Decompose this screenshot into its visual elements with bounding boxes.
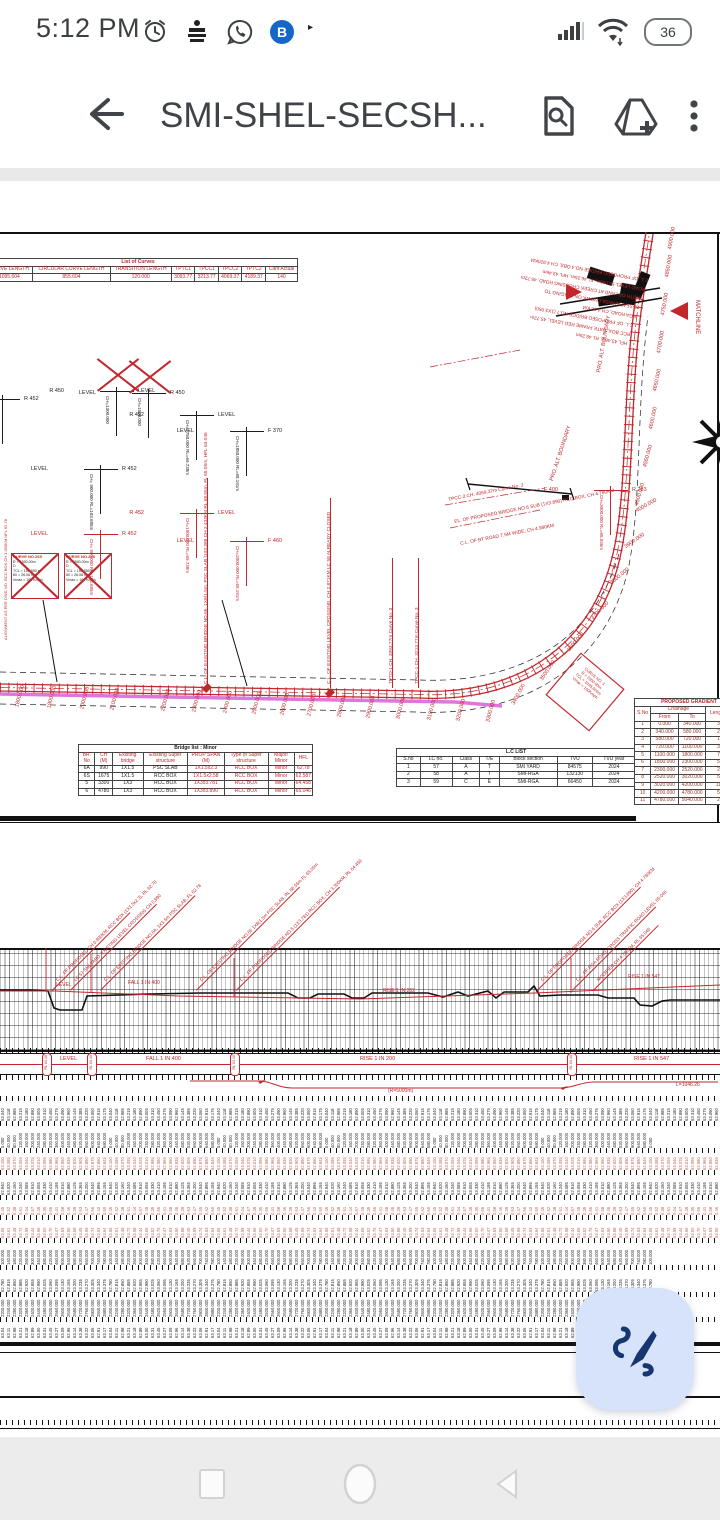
page-gap: [0, 168, 720, 181]
proposed-gradient-table: PROPOSED GRADIENTS.NoChainageLength Metr…: [634, 698, 720, 822]
data-row: 62.94063.02063.16063.24063.08562.91063.0…: [0, 1175, 718, 1195]
table-cell: 2024: [592, 771, 635, 779]
table-cell: 64.458: [294, 780, 312, 788]
table-row: 93020.0004200.0001180.00: [635, 782, 720, 790]
more-notifications-indicator: ▸: [308, 22, 313, 33]
data-table: Bridge list : MinorBR. NoCH (M)Existing …: [78, 744, 313, 796]
table-cell: 1X3: [112, 780, 143, 788]
column-header: Type of Super structure: [224, 752, 268, 765]
table-cell: 4069.37: [218, 274, 242, 282]
table-row: 6A9901X1.5PSC SLAB1X1.5x2.3RCC BOXMinor6…: [79, 765, 313, 773]
table-row: 114780.0005040.000260.00: [635, 797, 720, 805]
table-cell: 1X1.5x2.58: [188, 773, 224, 781]
table-cell: 2: [397, 771, 421, 779]
table-cell: 580.000: [678, 729, 706, 737]
data-value: 62.960: [714, 1101, 718, 1121]
table-cell: RCC BOX: [224, 788, 268, 796]
table-cell: 4: [635, 744, 651, 752]
table-cell: 1X1.5: [112, 773, 143, 781]
table-cell: 4780.000: [651, 797, 679, 805]
table-cell: 11: [635, 797, 651, 805]
table-cell: 220.00: [706, 767, 720, 775]
table-cell: 1: [635, 721, 651, 729]
table-title: PROPOSED GRADIENT: [635, 699, 720, 707]
table-cell: A: [452, 771, 480, 779]
table-cell: 1100.000: [651, 752, 679, 760]
table-cell: 8: [635, 774, 651, 782]
table-cell: 0.000: [651, 721, 679, 729]
table-row: 3580.000720.000140.00: [635, 736, 720, 744]
column-header: S.no: [397, 756, 421, 764]
table-title: List of Curves: [0, 259, 298, 267]
column-header: TVU year: [592, 756, 635, 764]
table-cell: 58: [420, 771, 452, 779]
bob-app-icon: B: [268, 18, 296, 46]
table-cell: 1X1.5: [112, 765, 143, 773]
table-cell: 1095.604: [0, 274, 33, 282]
table-cell: C: [452, 779, 480, 787]
table-cell: RCC BOX: [143, 780, 188, 788]
news-app-icon: [184, 18, 210, 44]
table-cell: 140.00: [706, 736, 720, 744]
data-value: 40.000: [654, 1126, 655, 1148]
left-edge-note: ALIGNMENT AS PER DWG NO. RCC BOX CH 1.05…: [3, 519, 9, 640]
table-cell: Minor: [268, 788, 294, 796]
table-cell: RCC BOX: [224, 780, 268, 788]
recents-button[interactable]: [182, 1459, 242, 1509]
table-cell: 6A: [79, 765, 95, 773]
column-header: Length Metre: [706, 706, 720, 721]
column-header: TPTC2: [242, 266, 266, 274]
data-row: 63.0463.1162.9863.2163.1862.8963.0063.31…: [0, 1322, 655, 1338]
plan-bottom-border2: [0, 822, 720, 823]
column-header: Class: [452, 756, 480, 764]
table-cell: 1X3x3.781: [188, 780, 224, 788]
table-cell: 10: [635, 790, 651, 798]
table-cell: 3213.77: [195, 274, 219, 282]
table-cell: 3300: [95, 780, 112, 788]
column-header: Major/ Minor: [268, 752, 294, 765]
table-cell: 120.000: [110, 274, 171, 282]
column-header: BR. No: [79, 752, 95, 765]
table-cell: T: [480, 771, 499, 779]
table-cell: PSC SLAB: [143, 765, 188, 773]
table-cell: 500.00: [706, 774, 720, 782]
vc-radius-label: (R=5000m): [388, 1088, 413, 1094]
annotate-fab[interactable]: [576, 1288, 694, 1410]
table-cell: Minor: [268, 765, 294, 773]
table-cell: 9: [635, 782, 651, 790]
data-table: PROPOSED GRADIENTS.NoChainageLength Metr…: [634, 698, 720, 805]
table-cell: 65.046: [294, 788, 312, 796]
data-row: 0.00040.00080.000120.000160.000200.00024…: [0, 1126, 655, 1148]
table-cell: 500.00: [706, 759, 720, 767]
home-button[interactable]: [330, 1459, 390, 1509]
data-table: List of CurvesNCURVE LENGTHCIRCULAR CURV…: [0, 258, 298, 282]
table-row: 647801X3RCC BOX1X3x3.890RCC BOXMinor65.0…: [79, 788, 313, 796]
column-header: TPCC2: [218, 266, 242, 274]
table-cell: 2: [635, 729, 651, 737]
table-cell: 57: [420, 764, 452, 772]
table-cell: 260.00: [706, 797, 720, 805]
column-header: LC no.: [420, 756, 452, 764]
table-cell: 3020.000: [651, 782, 679, 790]
table-row: 4720.0001100.000380.00: [635, 744, 720, 752]
table-cell: 1800.000: [651, 759, 679, 767]
data-value: 63.50: [714, 1220, 718, 1238]
table-row: 533001X3RCC BOX1X3x3.781RCC BOXMinor64.4…: [79, 780, 313, 788]
table-cell: 720.000: [678, 736, 706, 744]
plan-bottom-border: [0, 816, 636, 821]
table-cell: 580.00: [706, 790, 720, 798]
column-header: CURVE LENGTH: [0, 266, 33, 274]
column-header: CIRCULAR CURVE LENGTH: [33, 266, 110, 274]
table-cell: E: [480, 779, 499, 787]
data-row: 100.000140.000180.000220.000260.000300.0…: [0, 1243, 655, 1265]
table-cell: 990: [95, 765, 112, 773]
table-cell: A: [452, 764, 480, 772]
more-options-button[interactable]: [676, 94, 712, 138]
find-in-page-button[interactable]: [536, 94, 580, 138]
table-cell: 1675: [95, 773, 112, 781]
data-row: 63.5563.6163.4863.7263.5863.4463.6663.52…: [0, 1220, 718, 1238]
column-header: Cant Actual: [266, 266, 298, 274]
data-table: L.C LISTS.noLC no.ClassT/EBlock sectionT…: [396, 748, 636, 787]
vertical-curve-band: [0, 1080, 720, 1096]
table-cell: 5040.000: [678, 797, 706, 805]
table-cell: 3093.77: [171, 274, 195, 282]
back-button[interactable]: [82, 92, 126, 136]
table-cell: 6: [635, 759, 651, 767]
navigation-bar: [0, 1437, 720, 1520]
table-row: 359CESMI-RGA664502024: [397, 779, 636, 787]
table-cell: 1800.000: [678, 752, 706, 760]
table-title: Bridge list : Minor: [79, 745, 313, 753]
column-header: PROP SPAN (M): [188, 752, 224, 765]
table-cell: 84575: [557, 764, 592, 772]
data-value: 0.46: [714, 1200, 718, 1215]
table-row: 72300.0002520.000220.00: [635, 767, 720, 775]
status-bar: 5:12 PM B ▸ 36: [0, 0, 720, 60]
data-row: 63.10063.08563.07063.05563.04063.02563.0…: [0, 1153, 718, 1170]
vc-length-label: L=1046.26: [676, 1082, 700, 1088]
table-row: 61800.0002300.000500.00: [635, 759, 720, 767]
column-header: TPCC1: [195, 266, 219, 274]
document-title: SMI-SHEL-SECSH...: [160, 96, 487, 136]
data-row: 62.78062.81562.85062.88562.92062.95562.9…: [0, 1270, 655, 1292]
table-cell: 340.000: [651, 729, 679, 737]
whatsapp-icon: [226, 18, 254, 46]
table-cell: RCC BOX: [224, 765, 268, 773]
table-cell: 1X1.5x2.3: [188, 765, 224, 773]
wifi-icon: [596, 16, 630, 46]
column-header: From: [651, 714, 679, 722]
table-cell: Minor: [268, 780, 294, 788]
svg-text:B: B: [277, 24, 287, 40]
table-cell: 3: [635, 736, 651, 744]
table-row: 157ATSMI YARD845752024: [397, 764, 636, 772]
table-cell: 62.587: [294, 773, 312, 781]
table-cell: 720.000: [651, 744, 679, 752]
back-nav-button[interactable]: [478, 1459, 538, 1509]
matchline-label: MATCHLINE: [694, 300, 700, 334]
column-header: S.No: [635, 706, 651, 721]
table-cell: 1: [397, 764, 421, 772]
crossed-curve-box: CURVE NO.248 R = 2500.00mDTCL = 150.550 …: [64, 553, 112, 599]
table-row: 2340.000580.000240.00: [635, 729, 720, 737]
table-cell: 1180.00: [706, 782, 720, 790]
table-cell: RCC BOX: [224, 773, 268, 781]
table-cell: 3: [397, 779, 421, 787]
alarm-icon: [142, 18, 168, 44]
table-cell: 3020.000: [678, 774, 706, 782]
table-cell: 4200.000: [678, 782, 706, 790]
table-cell: 6S: [79, 773, 95, 781]
table-cell: 132130: [557, 771, 592, 779]
table-cell: 4780: [95, 788, 112, 796]
data-row: 2200.0002240.0002280.0002320.0002360.000…: [0, 1297, 655, 1317]
table-row: 1095.604855.604120.0003093.773213.774069…: [0, 274, 298, 282]
table-cell: 340.000: [678, 721, 706, 729]
column-header: TVU: [557, 756, 592, 764]
column-header: Chainage: [651, 706, 706, 714]
grade-band-line: [0, 1064, 720, 1065]
column-header: To: [678, 714, 706, 722]
table-cell: 59: [420, 779, 452, 787]
battery-percent: 36: [660, 24, 676, 40]
data-value: 140.000: [654, 1243, 655, 1265]
table-cell: 380.00: [706, 744, 720, 752]
plan-drawing: [0, 232, 720, 822]
table-cell: 4200.000: [651, 790, 679, 798]
table-cell: SMI YARD: [499, 764, 557, 772]
table-cell: 240.00: [706, 729, 720, 737]
table-title: L.C LIST: [397, 749, 636, 757]
sheet-line: [0, 1428, 720, 1429]
table-row: 82520.0003020.000500.00: [635, 774, 720, 782]
table-row: 6S16751X1.5RCC BOX1X1.5x2.58RCC BOXMinor…: [79, 773, 313, 781]
annotate-pen-icon: [605, 1319, 665, 1379]
table-cell: 2300.000: [678, 759, 706, 767]
table-cell: 4780.000: [678, 790, 706, 798]
table-cell: 2024: [592, 779, 635, 787]
column-header: Existing bridge: [112, 752, 143, 765]
table-cell: 66450: [557, 779, 592, 787]
battery-indicator: 36: [644, 18, 692, 46]
app-bar: SMI-SHEL-SECSH...: [0, 60, 720, 168]
table-cell: 700.00: [706, 752, 720, 760]
clock-time: 5:12 PM: [36, 13, 140, 44]
table-cell: 4189.37: [242, 274, 266, 282]
table-cell: 2520.000: [678, 767, 706, 775]
band-line: [0, 1053, 720, 1054]
table-cell: 2300.000: [651, 767, 679, 775]
data-row: 63.04063.11862.98563.21563.18062.89063.0…: [0, 1101, 718, 1121]
signal-icon: [556, 18, 586, 44]
table-cell: RCC BOX: [143, 773, 188, 781]
table-cell: Minor: [268, 773, 294, 781]
table-row: 10.000340.000340.00: [635, 721, 720, 729]
table-row: 258ATSMI-RGA1321302024: [397, 771, 636, 779]
table-cell: 2520.000: [651, 774, 679, 782]
table-cell: 2024: [592, 764, 635, 772]
table-cell: 5: [79, 780, 95, 788]
table-cell: 62.78: [294, 765, 312, 773]
data-row: 0.450.520.380.610.440.570.490.350.660.41…: [0, 1200, 718, 1215]
table-row: 51100.0001800.000700.00: [635, 752, 720, 760]
add-to-drive-button[interactable]: [614, 94, 658, 138]
table-cell: 855.604: [33, 274, 110, 282]
table-cell: RCC BOX: [143, 788, 188, 796]
table-row: 104200.0004780.000580.00: [635, 790, 720, 798]
column-header: T/E: [480, 756, 499, 764]
column-header: Block section: [499, 756, 557, 764]
table-cell: SMI-RGA: [499, 779, 557, 787]
column-header: HFL: [294, 752, 312, 765]
table-cell: 5: [635, 752, 651, 760]
table-cell: 340.00: [706, 721, 720, 729]
table-cell: 6: [79, 788, 95, 796]
tick-strip: [0, 1420, 720, 1425]
table-cell: 580.000: [651, 736, 679, 744]
table-cell: T: [480, 764, 499, 772]
table-cell: SMI-RGA: [499, 771, 557, 779]
data-value: 62.880: [714, 1175, 718, 1195]
table-cell: 1X3: [112, 788, 143, 796]
table-cell: 7: [635, 767, 651, 775]
data-value: 62.935: [714, 1153, 718, 1170]
table-cell: 1X3x3.890: [188, 788, 224, 796]
crossed-curve-box: CURVE NO.265 R = 1500.00mDTCL = 150.550 …: [11, 553, 59, 599]
column-header: Existing Super structure: [143, 752, 188, 765]
table-cell: 140: [266, 274, 298, 282]
column-header: TRANSITION LENGTH: [110, 266, 171, 274]
phone-screen: { "status_bar": { "time": "5:12 PM", "ba…: [0, 0, 720, 1520]
column-header: CH (M): [95, 752, 112, 765]
table-cell: 1100.000: [678, 744, 706, 752]
column-header: TPTC1: [171, 266, 195, 274]
